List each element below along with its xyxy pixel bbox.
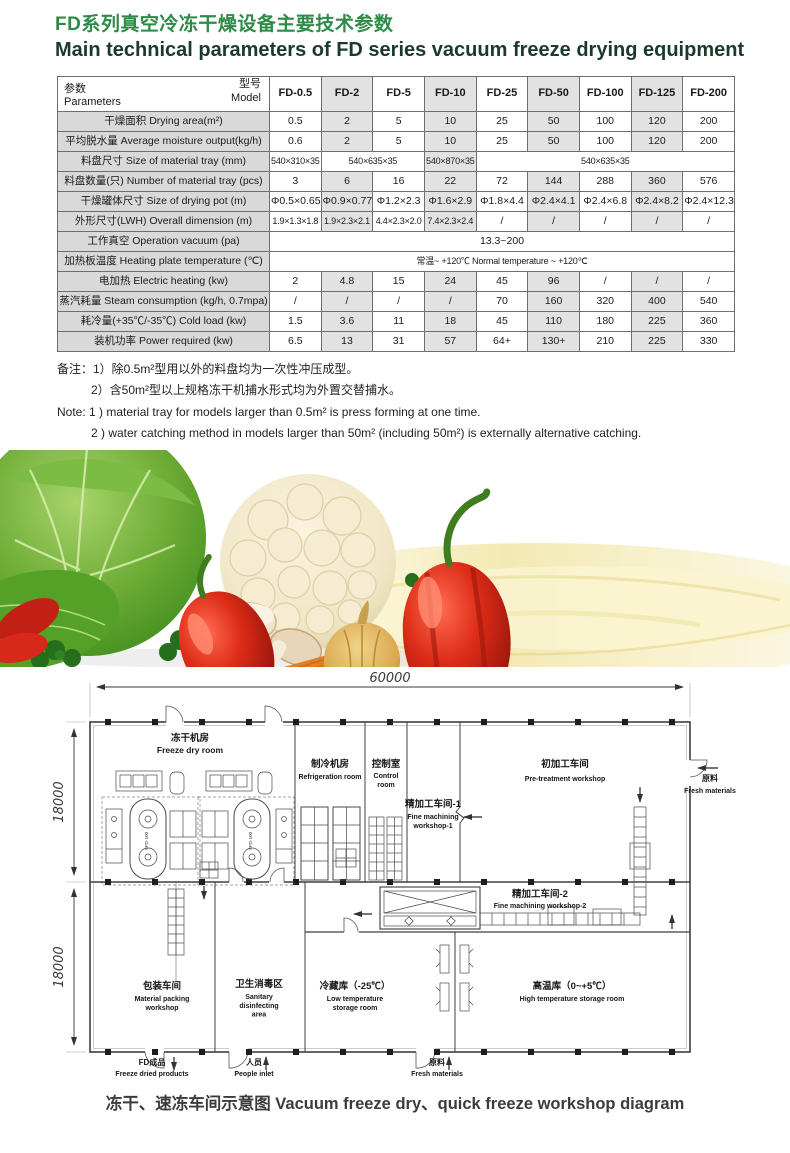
model-column-header: FD-100 (579, 77, 631, 112)
wall-column (528, 879, 534, 885)
value-cell: 13 (321, 332, 373, 352)
value-cell: 200 (683, 112, 735, 132)
value-cell: 130+ (528, 332, 580, 352)
value-cell: 4.4×2.3×2.0 (373, 212, 425, 232)
wall-column (481, 1049, 487, 1055)
entry-label-fresh-right-en: Fresh materials (684, 788, 736, 795)
room-label-refrigeration-zh: 制冷机房 (311, 758, 349, 770)
wall-column (340, 719, 346, 725)
value-cell: 5 (373, 112, 425, 132)
value-cell: 13.3~200 (270, 232, 735, 252)
wall-column (387, 719, 393, 725)
table-row: 平均脱水量 Average moisture output(kg/h)0.625… (58, 132, 735, 152)
wall-column (152, 719, 158, 725)
value-cell: 70 (476, 292, 528, 312)
vegetables-banner (0, 450, 790, 667)
wall-column (152, 1049, 158, 1055)
wall-column (481, 719, 487, 725)
wall-column (575, 1049, 581, 1055)
value-cell: Φ0.5×0.65 (270, 192, 322, 212)
room-label-fine2-en: Fine machining workshop-2 (494, 903, 587, 910)
value-cell: 31 (373, 332, 425, 352)
wall-column (434, 1049, 440, 1055)
value-cell: Φ2.4×6.8 (579, 192, 631, 212)
value-cell: 400 (631, 292, 683, 312)
value-cell: 96 (528, 272, 580, 292)
row-label: 工作真空 Operation vacuum (pa) (58, 232, 270, 252)
value-cell: Φ0.9×0.77 (321, 192, 373, 212)
value-cell: 10 (424, 112, 476, 132)
parameters-table: 型号Model 参数Parameters FD-0.5FD-2FD-5FD-10… (57, 76, 735, 352)
table-row: 加热板温度 Heating plate temperature (℃)常温~ +… (58, 252, 735, 272)
wall-column (105, 1049, 111, 1055)
value-cell: 18 (424, 312, 476, 332)
wall-column (669, 879, 675, 885)
value-cell: 6.5 (270, 332, 322, 352)
value-cell: 4.8 (321, 272, 373, 292)
value-cell: / (579, 212, 631, 232)
value-cell: 3.6 (321, 312, 373, 332)
row-label: 装机功率 Power required (kw) (58, 332, 270, 352)
workshop-floorplan-wrap: 60000 18000 18000 (50, 667, 740, 1082)
table-row: 装机功率 Power required (kw)6.513315764+130+… (58, 332, 735, 352)
freeze-dryer-1 (102, 797, 200, 885)
note-line-en-1: Note: 1 ) material tray for models large… (57, 402, 790, 423)
value-cell: Φ1.8×4.4 (476, 192, 528, 212)
wall-column (105, 719, 111, 725)
wall-column (669, 1049, 675, 1055)
corner-param-label: 参数Parameters (64, 83, 121, 111)
value-cell: 22 (424, 172, 476, 192)
wall-column (528, 719, 534, 725)
wall-column (669, 719, 675, 725)
wall-column (246, 1049, 252, 1055)
diagram-caption: 冻干、速冻车间示意图 Vacuum freeze dry、quick freez… (0, 1090, 790, 1114)
value-cell: 540 (683, 292, 735, 312)
value-cell: Φ2.4×12.3 (683, 192, 735, 212)
exit-label-products-zh: FD成品 (139, 1057, 166, 1067)
value-cell: 57 (424, 332, 476, 352)
room-label-warm-storage-en: High temperature storage room (520, 996, 625, 1003)
room-label-sanitary-zh: 卫生消毒区 (235, 978, 283, 990)
value-cell: 540×870×35 (424, 152, 476, 172)
value-cell: / (373, 292, 425, 312)
value-cell: 72 (476, 172, 528, 192)
entry-label-fresh-bottom-zh: 原料 (429, 1057, 445, 1067)
model-column-header: FD-200 (683, 77, 735, 112)
row-label: 干燥罐体尺寸 Size of drying pot (m) (58, 192, 270, 212)
value-cell: 2 (321, 132, 373, 152)
value-cell: / (528, 212, 580, 232)
wall-column (434, 879, 440, 885)
wall-column (340, 1049, 346, 1055)
model-column-header: FD-50 (528, 77, 580, 112)
table-row: 干燥罐体尺寸 Size of drying pot (m)Φ0.5×0.65Φ0… (58, 192, 735, 212)
wall-column (293, 1049, 299, 1055)
value-cell: Φ2.4×4.1 (528, 192, 580, 212)
value-cell: 1.5 (270, 312, 322, 332)
room-label-fine2-zh: 精加工车间-2 (512, 888, 568, 900)
value-cell: 50 (528, 112, 580, 132)
value-cell: 576 (683, 172, 735, 192)
room-label-freeze-dry-zh: 冻干机房 (171, 732, 209, 744)
value-cell: 110 (528, 312, 580, 332)
page-title-en: Main technical parameters of FD series v… (55, 39, 790, 62)
entry-label-fresh-right-zh: 原料 (702, 773, 718, 783)
exit-label-products-en: Freeze dried products (115, 1071, 188, 1078)
room-label-fine1-zh: 精加工车间-1 (405, 798, 462, 810)
row-label: 电加热 Electric heating (kw) (58, 272, 270, 292)
model-column-header: FD-10 (424, 77, 476, 112)
refrigeration-units (301, 807, 360, 880)
value-cell: 160 (528, 292, 580, 312)
page: { "header": { "title_zh": "FD系列真空冷冻干燥设备主… (0, 0, 790, 1153)
workshop-floorplan: 60000 18000 18000 (50, 667, 740, 1082)
room-label-warm-storage-zh: 高温库（0~+5℃） (533, 980, 612, 992)
dryer-model-label-2: SPD-100 (248, 832, 253, 851)
value-cell: 3 (270, 172, 322, 192)
value-cell: 210 (579, 332, 631, 352)
wall-column (293, 719, 299, 725)
value-cell: 5 (373, 132, 425, 152)
value-cell: Φ1.2×2.3 (373, 192, 425, 212)
room-label-packing-zh: 包装车间 (142, 980, 181, 992)
value-cell: 120 (631, 112, 683, 132)
value-cell: 200 (683, 132, 735, 152)
value-cell: 50 (528, 132, 580, 152)
value-cell: Φ2.4×8.2 (631, 192, 683, 212)
row-label: 料盘尺寸 Size of material tray (mm) (58, 152, 270, 172)
value-cell: 288 (579, 172, 631, 192)
room-label-control-en: Controlroom (374, 773, 399, 789)
value-cell: / (631, 272, 683, 292)
value-cell: 25 (476, 132, 528, 152)
note-line-en-2: 2 ) water catching method in models larg… (91, 423, 790, 444)
note-line-zh-1: 备注：1）除0.5m²型用以外的料盘均为一次性冲压成型。 (57, 359, 790, 380)
value-cell: 100 (579, 132, 631, 152)
vertical-conveyor (630, 807, 650, 915)
wall-column (246, 719, 252, 725)
row-label: 耗冷量(+35℃/-35℃) Cold load (kw) (58, 312, 270, 332)
table-row: 蒸汽耗量 Steam consumption (kg/h, 0.7mpa)///… (58, 292, 735, 312)
table-row: 料盘数量(只) Number of material tray (pcs)361… (58, 172, 735, 192)
room-label-sanitary-en: Sanitarydisinfectingarea (239, 994, 278, 1019)
value-cell: 540×635×35 (476, 152, 734, 172)
wall-column (105, 879, 111, 885)
wall-column (575, 719, 581, 725)
wall-column (387, 1049, 393, 1055)
value-cell: 25 (476, 112, 528, 132)
table-row: 电加热 Electric heating (kw)24.815244596/// (58, 272, 735, 292)
value-cell: 0.5 (270, 112, 322, 132)
model-column-header: FD-0.5 (270, 77, 322, 112)
table-row: 干燥面积 Drying area(m²)0.525102550100120200 (58, 112, 735, 132)
room-label-packing-en: Material packingworkshop (135, 996, 190, 1012)
wall-column (152, 879, 158, 885)
value-cell: 45 (476, 272, 528, 292)
value-cell: / (270, 292, 322, 312)
notes-block: 备注：1）除0.5m²型用以外的料盘均为一次性冲压成型。 2）含50m²型以上规… (57, 359, 790, 444)
wall-column (622, 1049, 628, 1055)
value-cell: / (424, 292, 476, 312)
wall-column (246, 879, 252, 885)
value-cell: Φ1.6×2.9 (424, 192, 476, 212)
freeze-dryer-2 (198, 797, 294, 885)
value-cell: 11 (373, 312, 425, 332)
wall-column (199, 719, 205, 725)
dim-height-upper-label: 18000 (52, 782, 67, 823)
value-cell: 常温~ +120℃ Normal temperature ~ +120℃ (270, 252, 735, 272)
value-cell: / (631, 212, 683, 232)
value-cell: 330 (683, 332, 735, 352)
value-cell: / (683, 272, 735, 292)
value-cell: 16 (373, 172, 425, 192)
value-cell: 100 (579, 112, 631, 132)
wall-column (622, 719, 628, 725)
room-label-fine1-en: Fine machiningworkshop-1 (407, 814, 458, 830)
value-cell: 360 (631, 172, 683, 192)
row-label: 蒸汽耗量 Steam consumption (kg/h, 0.7mpa) (58, 292, 270, 312)
wall-column (528, 1049, 534, 1055)
entry-label-people-zh: 人员 (246, 1057, 262, 1067)
value-cell: 180 (579, 312, 631, 332)
value-cell: 360 (683, 312, 735, 332)
table-corner-cell: 型号Model 参数Parameters (58, 77, 270, 112)
room-label-control-zh: 控制室 (372, 758, 401, 770)
value-cell: / (683, 212, 735, 232)
value-cell: 10 (424, 132, 476, 152)
value-cell: 144 (528, 172, 580, 192)
row-label: 外形尺寸(LWH) Overall dimension (m) (58, 212, 270, 232)
row-label: 干燥面积 Drying area(m²) (58, 112, 270, 132)
packing-rack (168, 882, 184, 982)
control-cabinets (116, 771, 272, 794)
value-cell: 0.6 (270, 132, 322, 152)
model-column-header: FD-25 (476, 77, 528, 112)
model-column-header: FD-125 (631, 77, 683, 112)
value-cell: 225 (631, 312, 683, 332)
value-cell: 1.9×2.3×2.1 (321, 212, 373, 232)
corner-model-label: 型号Model (231, 78, 261, 106)
row-label: 料盘数量(只) Number of material tray (pcs) (58, 172, 270, 192)
page-title-zh: FD系列真空冷冻干燥设备主要技术参数 (55, 9, 790, 36)
table-row: 耗冷量(+35℃/-35℃) Cold load (kw)1.53.611184… (58, 312, 735, 332)
value-cell: 64+ (476, 332, 528, 352)
value-cell: 2 (270, 272, 322, 292)
value-cell: / (579, 272, 631, 292)
value-cell: 1.9×1.3×1.8 (270, 212, 322, 232)
vegetables-photo (0, 450, 790, 667)
page-header: FD系列真空冷冻干燥设备主要技术参数 Main technical parame… (0, 0, 790, 62)
wall-column (622, 879, 628, 885)
room-label-pretreatment-zh: 初加工车间 (541, 758, 589, 770)
table-header-row: 型号Model 参数Parameters FD-0.5FD-2FD-5FD-10… (58, 77, 735, 112)
row-label: 平均脱水量 Average moisture output(kg/h) (58, 132, 270, 152)
control-room-racks (369, 817, 402, 880)
value-cell: 15 (373, 272, 425, 292)
value-cell: 320 (579, 292, 631, 312)
value-cell: 225 (631, 332, 683, 352)
note-line-zh-2: 2）含50m²型以上规格冻干机捕水形式均为外置交替捕水。 (91, 380, 790, 401)
parameters-table-wrap: 型号Model 参数Parameters FD-0.5FD-2FD-5FD-10… (57, 76, 735, 352)
value-cell: / (321, 292, 373, 312)
row-label: 加热板温度 Heating plate temperature (℃) (58, 252, 270, 272)
room-label-refrigeration-en: Refrigeration room (298, 774, 361, 781)
value-cell: 540×310×35 (270, 152, 322, 172)
table-row: 工作真空 Operation vacuum (pa)13.3~200 (58, 232, 735, 252)
value-cell: 7.4×2.3×2.4 (424, 212, 476, 232)
dryer-model-label-1: SPD-100 (144, 832, 149, 851)
wall-column (434, 719, 440, 725)
room-label-freeze-dry-en: Freeze dry room (157, 745, 224, 755)
room-label-cold-storage-en: Low temperaturestorage room (327, 996, 384, 1012)
value-cell: 120 (631, 132, 683, 152)
value-cell: 45 (476, 312, 528, 332)
room-label-pretreatment-en: Pre-treatment workshop (525, 776, 606, 783)
value-cell: 2 (321, 112, 373, 132)
wall-column (199, 1049, 205, 1055)
room-label-cold-storage-zh: 冷藏库（-25℃） (320, 980, 391, 992)
entry-label-fresh-bottom-en: Fresh materials (411, 1071, 463, 1078)
value-cell: 6 (321, 172, 373, 192)
table-row: 料盘尺寸 Size of material tray (mm)540×310×3… (58, 152, 735, 172)
dim-height-lower-label: 18000 (52, 947, 67, 988)
wall-column (481, 879, 487, 885)
table-row: 外形尺寸(LWH) Overall dimension (m)1.9×1.3×1… (58, 212, 735, 232)
value-cell: 24 (424, 272, 476, 292)
value-cell: / (476, 212, 528, 232)
entry-label-people-en: People inlet (234, 1071, 274, 1078)
model-column-header: FD-2 (321, 77, 373, 112)
quick-freezer (380, 887, 480, 929)
model-column-header: FD-5 (373, 77, 425, 112)
wall-column (575, 879, 581, 885)
value-cell: 540×635×35 (321, 152, 424, 172)
dim-width-label: 60000 (369, 671, 410, 686)
